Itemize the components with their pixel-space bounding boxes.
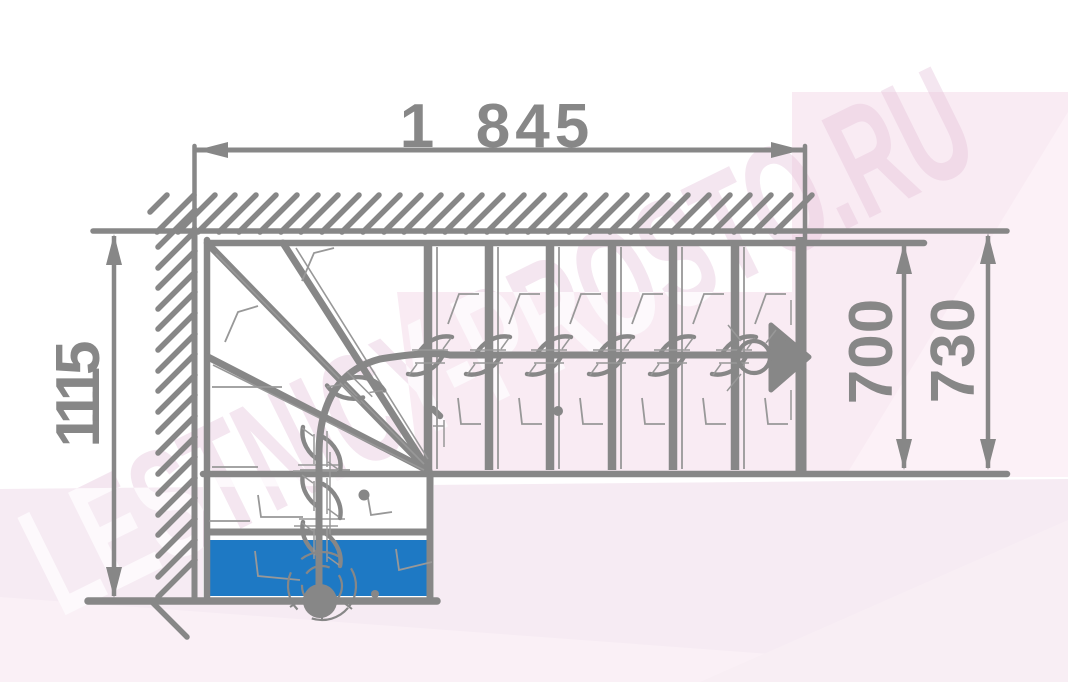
svg-text:700: 700 <box>837 298 906 404</box>
svg-text:730: 730 <box>919 297 988 403</box>
svg-text:1: 1 <box>400 92 434 161</box>
svg-text:1115: 1115 <box>44 342 113 448</box>
svg-text:845: 845 <box>476 92 594 161</box>
